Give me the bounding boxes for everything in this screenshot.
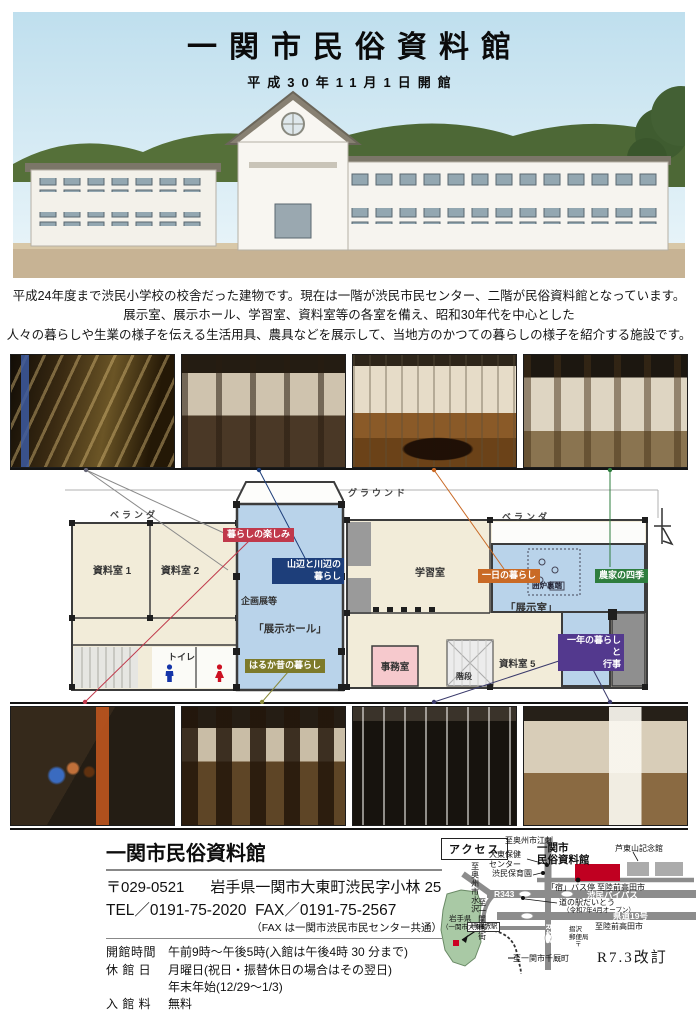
map-r456: R456 <box>544 924 553 944</box>
photo-tools-wall <box>10 354 175 468</box>
intro-line-3: 人々の暮らしや生業の様子を伝える生活用具、農具などを展示して、当地方のかつての暮… <box>0 326 698 345</box>
exhibit-photo-row-bottom <box>10 704 688 828</box>
map-bypass: 渋民バイパス <box>587 890 638 900</box>
photo-pottery-display <box>181 706 346 826</box>
female-icon <box>214 664 225 683</box>
info-row-admission: 入 館 料 無料 <box>106 996 442 1013</box>
room-shiryo5: 資料室 5 <box>499 656 535 670</box>
fax-note: （FAX は一関市渋民市民センター共通） <box>106 920 442 935</box>
page-title: 一関市民俗資料館 <box>13 22 685 66</box>
map-iwate-note: （一関市大東町） <box>442 924 494 932</box>
poster-page: 一関市民俗資料館 平成30年11月1日開館 平成24年度まで渋民小学校の校舎だっ… <box>0 12 698 999</box>
room-gakushu: 学習室 <box>372 564 488 579</box>
tag-kurashi-tanoshimi: 暮らしの楽しみ <box>223 528 294 542</box>
revision-note: R7.3改訂 <box>597 946 668 967</box>
room-shiryo1: 資料室 1 <box>76 562 148 577</box>
divider <box>106 938 442 939</box>
tag-nouka-shiki: 農家の四季 <box>595 569 648 583</box>
photo-lace-display <box>352 706 517 826</box>
floor-plan: ベランダ グラウンド ベランダ 資料室 1 資料室 2 企画展等 「展示ホール」… <box>10 468 688 704</box>
access-map: アクセス 至奥州市江刺 一関市 民俗資料館 芦東山記念館 大東保健 センター 渋… <box>437 834 698 980</box>
room-kikakuten: 企画展等 <box>241 594 277 607</box>
room-shiryo2: 資料室 2 <box>150 562 210 577</box>
photo-costume-display <box>10 706 175 826</box>
label-veranda-right: ベランダ <box>502 510 550 523</box>
room-tenji-room: 「展示室」 <box>505 600 558 615</box>
exhibit-photo-row-top <box>10 354 688 468</box>
photo-woodcraft-display <box>523 706 688 826</box>
tel-fax-line: TEL／0191-75-2020 FAX／0191-75-2567 <box>106 898 442 920</box>
male-icon <box>164 664 175 683</box>
map-to-senmaya: 至一関市千厩町 <box>513 954 569 964</box>
tag-ichinen-gyoji: 一年の暮らしと 行事 <box>558 634 624 671</box>
map-location-dot <box>453 940 459 946</box>
map-to-rikuzen-2: 至陸前高田市 <box>595 922 643 932</box>
info-rows: 開館時間 午前9時～午後5時(入館は午後4時 30 分まで) 休 館 日 月曜日… <box>106 944 442 1014</box>
info-row-closed-2: 年末年始(12/29～1/3) <box>106 979 442 996</box>
address-line: 〒029-0521岩手県一関市大東町渋民字小林 25 <box>106 876 442 897</box>
tag-yamabe-kawabe: 山辺と川辺の 暮らし <box>272 558 344 583</box>
footer: 一関市民俗資料館 〒029-0521岩手県一関市大東町渋民字小林 25 TEL／… <box>10 828 688 982</box>
museum-building-marker <box>575 864 620 881</box>
map-r343: R343 <box>494 889 514 899</box>
contact-block: 一関市民俗資料館 〒029-0521岩手県一関市大東町渋民字小林 25 TEL／… <box>106 837 442 1014</box>
address: 岩手県一関市大東町渋民字小林 25 <box>210 879 441 896</box>
map-ashitozan: 芦東山記念館 <box>615 844 663 854</box>
map-kendo19: 県道19号 <box>613 911 648 921</box>
label-ground: グラウンド <box>348 486 408 499</box>
page-subtitle: 平成30年11月1日開館 <box>13 72 685 91</box>
tag-ichinichi: 一日の暮らし <box>478 569 540 583</box>
hero-photo: 一関市民俗資料館 平成30年11月1日開館 <box>13 12 685 278</box>
tag-haruka-mukashi: はるか昔の暮らし <box>245 659 325 673</box>
photo-irori-room <box>352 354 517 468</box>
intro-line-1: 平成24年度まで渋民小学校の校舎だった建物です。現在は一階が渋民市民センター、二… <box>0 287 698 306</box>
map-post-office: 摺沢 郵便局 <box>569 926 589 942</box>
photo-straw-craft <box>523 354 688 468</box>
info-row-hours: 開館時間 午前9時～午後5時(入館は午後4時 30 分まで) <box>106 944 442 961</box>
intro-text: 平成24年度まで渋民小学校の校舎だった建物です。現在は一階が渋民市民センター、二… <box>0 287 698 345</box>
map-hoken-center: 大東保健 センター <box>489 850 521 869</box>
facility-name: 一関市民俗資料館 <box>106 837 442 871</box>
photo-loom-room <box>181 354 346 468</box>
room-tenji-hall: 「展示ホール」 <box>237 621 343 636</box>
postal-code: 〒029-0521 <box>106 879 184 896</box>
map-to-ichinoseki: 至一関市街 <box>477 898 487 941</box>
map-iwate: 岩手県 <box>449 914 472 923</box>
floor-plan-labels: ベランダ グラウンド ベランダ 資料室 1 資料室 2 企画展等 「展示ホール」… <box>10 470 688 702</box>
info-row-closed: 休 館 日 月曜日(祝日・振替休日の場合はその翌日) <box>106 962 442 979</box>
map-post-mark: 〒 <box>575 941 582 949</box>
map-hoikuen: 渋民保育園 <box>492 869 532 879</box>
hero-titles: 一関市民俗資料館 平成30年11月1日開館 <box>13 22 685 91</box>
room-toilet: トイレ <box>168 650 195 663</box>
intro-line-2: 展示室、展示ホール、学習室、資料室等の各室を備え、昭和30年代を中心とした <box>0 306 698 325</box>
label-veranda-left: ベランダ <box>110 508 158 521</box>
room-kaidan: 階段 <box>456 671 472 682</box>
map-museum-name: 一関市 民俗資料館 <box>537 842 590 866</box>
room-jimu: 事務室 <box>372 659 418 673</box>
